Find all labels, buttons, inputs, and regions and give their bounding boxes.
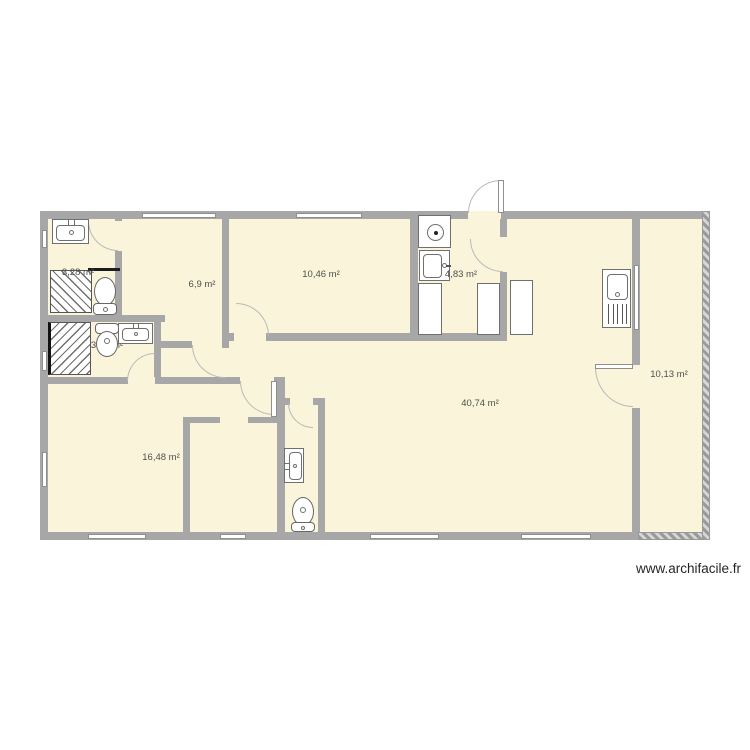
toilet-icon	[96, 331, 118, 357]
hatched-wall	[702, 211, 710, 540]
drain-dot	[69, 230, 74, 235]
door-arc	[468, 180, 501, 213]
room-area-label: 3,28 m²	[48, 267, 108, 278]
window	[296, 213, 362, 218]
window	[42, 452, 47, 487]
drain-dot	[134, 332, 138, 336]
sink-drainer-unit-icon	[602, 269, 631, 328]
drainer-line	[608, 304, 609, 324]
window	[42, 351, 47, 371]
counter-unit	[418, 283, 442, 335]
wall	[248, 417, 278, 423]
window	[220, 534, 246, 539]
room-area-label: 10,46 m²	[291, 269, 351, 280]
counter-unit	[510, 280, 533, 335]
wall	[318, 398, 325, 532]
room-area-label: 40,74 m²	[450, 398, 510, 409]
wall	[40, 315, 165, 322]
room-area-label: 16,48 m²	[131, 452, 191, 463]
room-area-label: 10,13 m²	[639, 369, 699, 380]
washbasin-icon	[52, 219, 89, 244]
door-leaf	[271, 381, 277, 417]
window	[42, 230, 47, 248]
wall	[229, 333, 507, 341]
toilet-icon	[94, 277, 116, 306]
window	[142, 213, 216, 218]
washbasin-icon	[118, 323, 153, 344]
wall	[40, 211, 710, 219]
drainer-line	[613, 304, 614, 324]
entrance-door-leaf	[498, 180, 504, 213]
door-leaf	[595, 364, 633, 369]
faucet-icon	[133, 323, 139, 329]
washbasin-icon	[284, 448, 304, 483]
faucet-icon	[284, 463, 290, 470]
toilet-tank	[93, 303, 117, 315]
flush-dot	[104, 338, 110, 344]
floor-plan: 3,06 m² 3,28 m²	[0, 0, 750, 750]
wall	[154, 315, 161, 384]
flush-dot	[301, 526, 305, 530]
window	[370, 534, 439, 539]
wall	[183, 417, 220, 423]
drain-dot	[293, 464, 297, 468]
wall	[410, 219, 418, 333]
watermark: www.archifacile.fr	[636, 561, 741, 576]
room-area-label: 4,83 m²	[431, 269, 491, 280]
wall	[183, 417, 190, 532]
floor-plan-canvas: 3,06 m² 3,28 m²	[0, 0, 750, 750]
drain-dot	[615, 292, 620, 297]
drainer-line	[622, 304, 623, 324]
window	[634, 265, 639, 330]
hob-icon	[418, 215, 451, 248]
drainer-line	[617, 304, 618, 324]
drainer-line	[626, 304, 627, 324]
hatched-wall	[638, 532, 710, 540]
flush-dot	[103, 307, 108, 312]
counter-unit	[477, 283, 500, 335]
window	[88, 534, 146, 539]
wall	[40, 211, 48, 540]
flush-dot	[300, 507, 306, 513]
faucet-icon	[68, 219, 75, 226]
burner-dot	[434, 231, 438, 235]
room-area-label: 6,9 m²	[172, 279, 232, 290]
toilet-tank	[291, 522, 315, 532]
window	[521, 534, 591, 539]
faucet-bar	[446, 265, 451, 267]
